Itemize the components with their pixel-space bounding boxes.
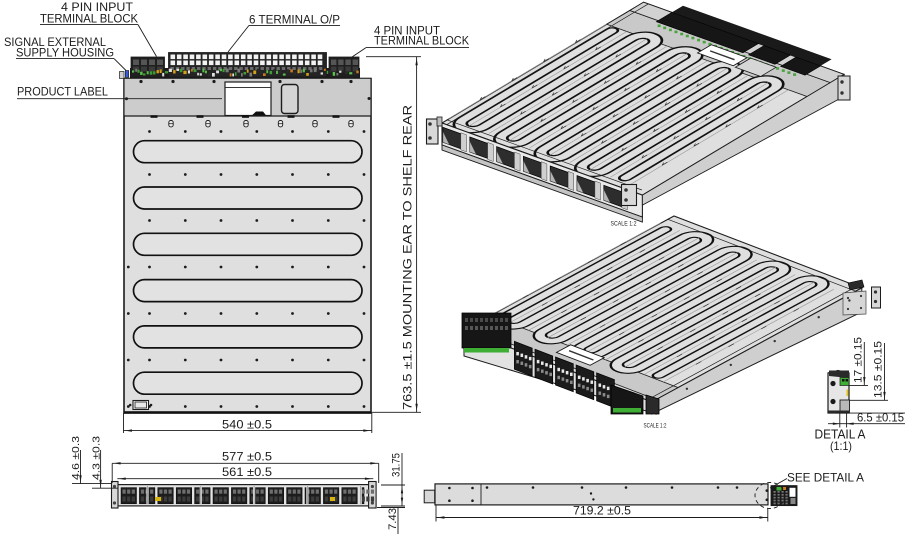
svg-text:577 ±0.5: 577 ±0.5 (222, 450, 272, 464)
svg-text:561 ±0.5: 561 ±0.5 (222, 465, 272, 479)
svg-text:13.5 ±0.15: 13.5 ±0.15 (873, 341, 885, 398)
svg-text:540 ±0.5: 540 ±0.5 (222, 417, 272, 431)
svg-text:(1:1): (1:1) (830, 439, 852, 453)
svg-text:PRODUCT LABEL: PRODUCT LABEL (17, 87, 109, 99)
svg-text:763.5 ±1.5 MOUNTING EAR TO SH: 763.5 ±1.5 MOUNTING EAR TO SHELF REAR (403, 105, 415, 410)
svg-text:SCALE 1:2: SCALE 1:2 (611, 222, 638, 228)
svg-text:4 PIN INPUT: 4 PIN INPUT (61, 2, 133, 14)
svg-text:17 ±0.15: 17 ±0.15 (853, 337, 865, 383)
svg-text:719.2 ±0.5: 719.2 ±0.5 (573, 504, 631, 518)
svg-text:SEE DETAIL A: SEE DETAIL A (787, 471, 864, 485)
svg-text:6.5 ±0.15: 6.5 ±0.15 (857, 411, 904, 425)
svg-text:7.43: 7.43 (387, 508, 399, 530)
svg-text:31.75: 31.75 (391, 453, 403, 477)
svg-text:TERMINAL BLOCK: TERMINAL BLOCK (374, 36, 469, 48)
svg-text:SCALE 1:2: SCALE 1:2 (644, 424, 668, 430)
svg-text:4.6 ±0.3: 4.6 ±0.3 (70, 436, 82, 480)
svg-text:4.3 ±0.3: 4.3 ±0.3 (90, 436, 102, 480)
svg-text:6 TERMINAL O/P: 6 TERMINAL O/P (249, 14, 340, 26)
svg-text:TERMINAL BLOCK: TERMINAL BLOCK (40, 14, 138, 26)
svg-text:SUPPLY HOUSING: SUPPLY HOUSING (16, 47, 114, 59)
